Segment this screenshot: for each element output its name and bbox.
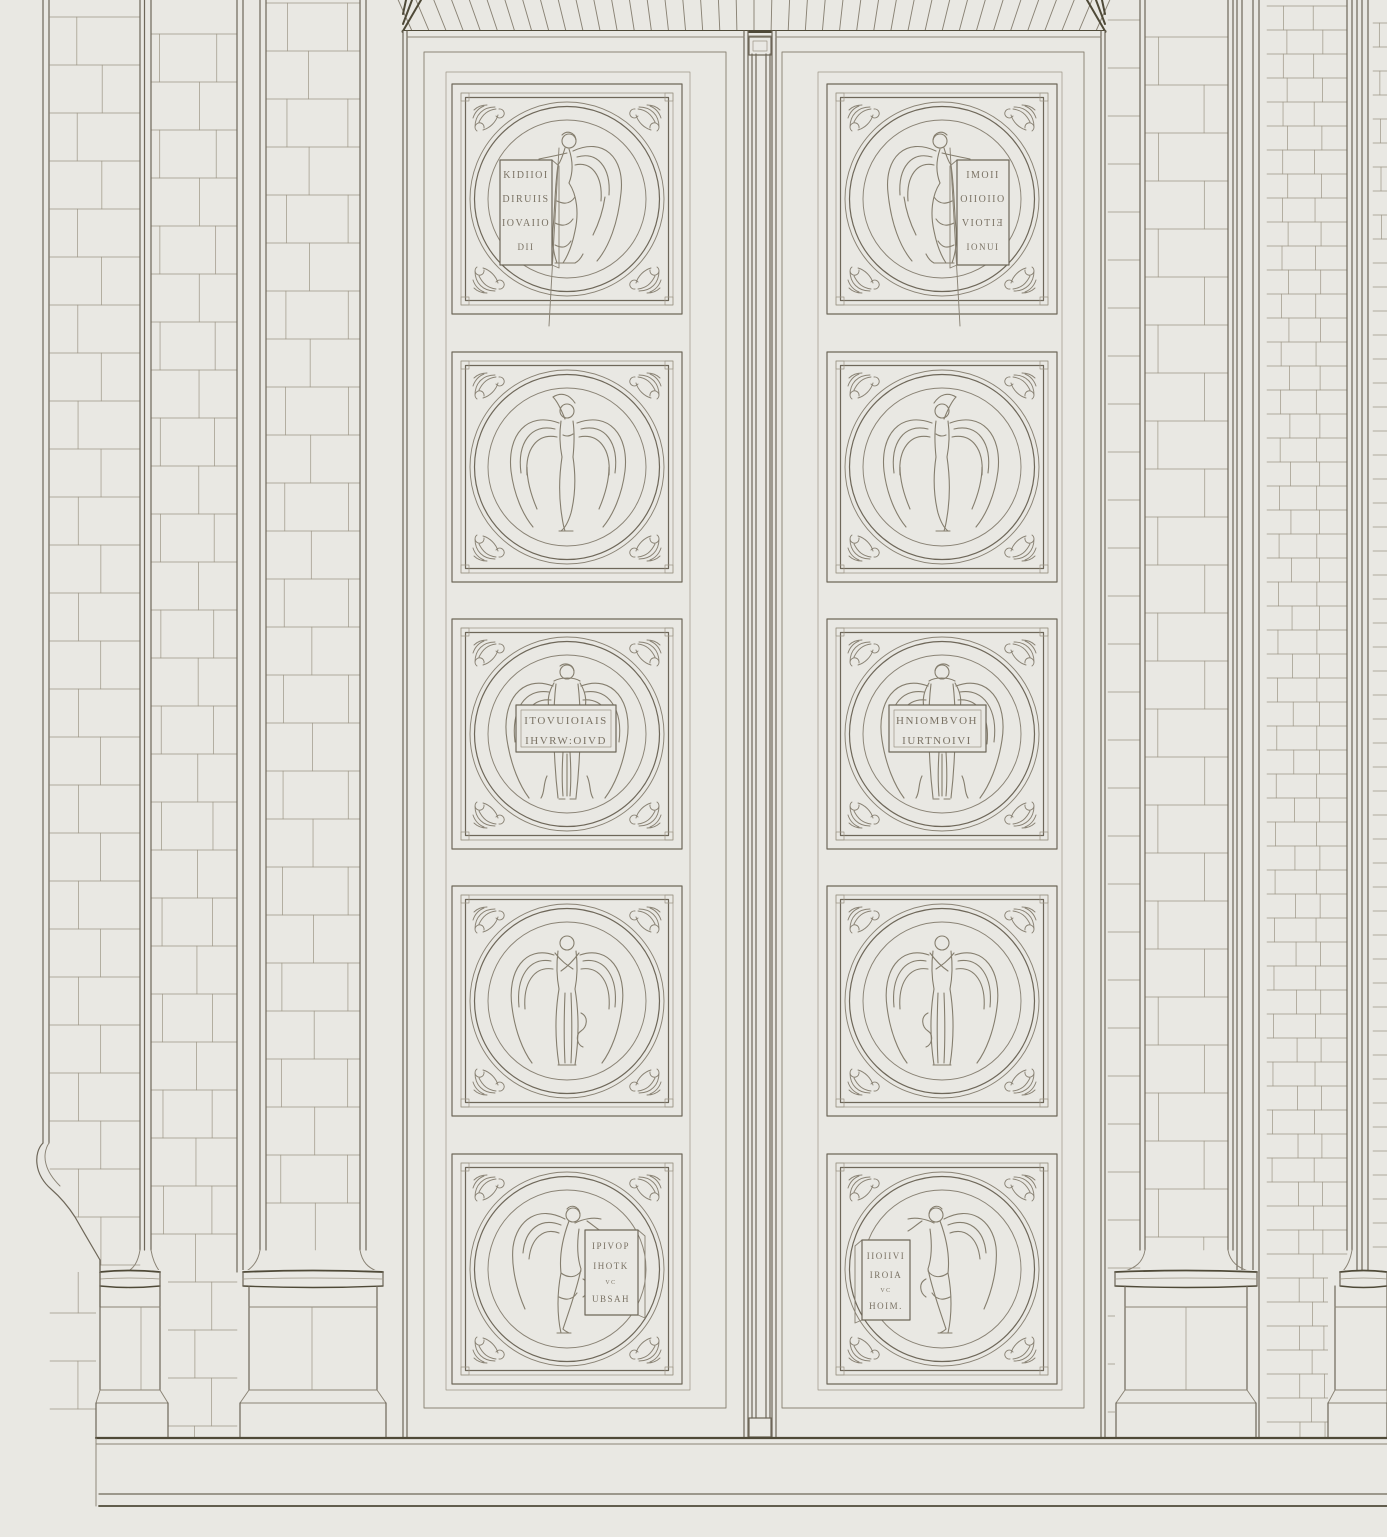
tablet-inscription-line: DIRUIIS xyxy=(502,194,549,205)
tablet-inscription-line: DII xyxy=(518,242,535,252)
tablet-inscription-line: IONUI xyxy=(967,242,1000,252)
tablet-inscription-line: VC xyxy=(605,1280,616,1286)
tablet-inscription-line: IIOIIVI xyxy=(867,1251,905,1261)
engraving-plate: KIDIIOIDIRUIISIOVAIIODIIIMOIIOIIOIIOVIOT… xyxy=(0,0,1387,1537)
tablet-inscription-line: UBSAH xyxy=(592,1294,630,1304)
tablet-inscription-line: VC xyxy=(880,1288,891,1294)
tablet-inscription-line: IROIA xyxy=(870,1270,903,1280)
tablet-inscription-line: KIDIIOI xyxy=(503,170,549,181)
inscription-tablet: ITOVUIOIAISIHVRW:OIVD xyxy=(516,705,616,752)
inscription-tablet: IIOIIVIIROIAVCHOIM. xyxy=(855,1240,910,1323)
tablet-inscription-line: ITOVUIOIAIS xyxy=(524,715,608,727)
tablet-inscription-line: OIIOIIO xyxy=(960,194,1006,205)
tablet-inscription-line: IOVAIIO xyxy=(502,218,550,229)
tablet-inscription-line: HOIM. xyxy=(869,1301,903,1311)
tablet-inscription-line: VIOTIƎ xyxy=(962,218,1004,229)
tablet-inscription-line: IURTNOIVI xyxy=(902,735,972,747)
tablet-inscription-line: IHVRW:OIVD xyxy=(525,735,607,747)
tablet-inscription-line: IPIVOP xyxy=(592,1241,630,1251)
tablet-inscription-line: IHOTK xyxy=(593,1261,629,1271)
threshold-steps xyxy=(96,1438,1387,1537)
inscription-tablet: HNIOMBVOHIURTNOIVI xyxy=(889,705,986,752)
inscription-tablet: IPIVOPIHOTKVCUBSAH xyxy=(585,1230,645,1318)
tablet-inscription-line: IMOII xyxy=(966,170,1000,181)
architectural-drawing: KIDIIOIDIRUIISIOVAIIODIIIMOIIOIIOIIOVIOT… xyxy=(0,0,1387,1537)
tablet-inscription-line: HNIOMBVOH xyxy=(896,715,978,727)
